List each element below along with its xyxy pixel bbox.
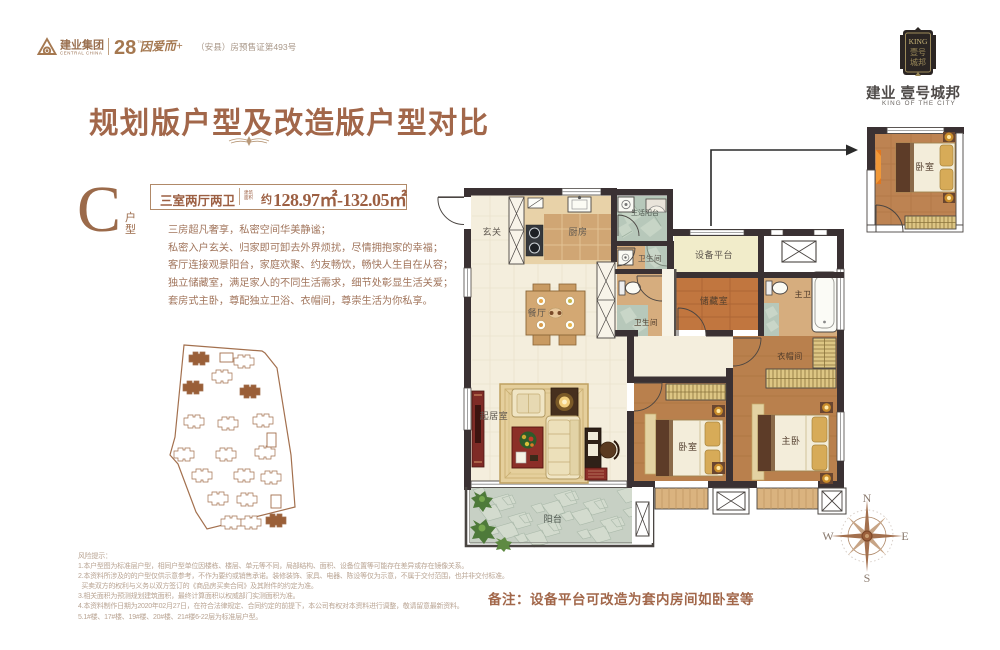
svg-text:城邦: 城邦 [910, 57, 926, 67]
svg-text:KING: KING [909, 37, 928, 46]
svg-text:建业集团: 建业集团 [60, 38, 104, 52]
svg-text:储藏室: 储藏室 [700, 295, 729, 306]
svg-text:N: N [863, 491, 872, 505]
svg-text:生活阳台: 生活阳台 [631, 208, 659, 217]
svg-text:CENTRAL CHINA: CENTRAL CHINA [60, 51, 102, 56]
svg-text:28: 28 [114, 37, 136, 59]
svg-text:壹号: 壹号 [910, 47, 926, 57]
svg-text:因爱而+: 因爱而+ [140, 39, 183, 54]
svg-text:主卧: 主卧 [781, 435, 800, 446]
svg-text:厨房: 厨房 [568, 226, 587, 237]
svg-text:玄关: 玄关 [482, 226, 501, 237]
svg-text:E: E [901, 529, 908, 543]
svg-text:起居室: 起居室 [480, 410, 509, 421]
svg-text:卫生间: 卫生间 [634, 317, 658, 327]
svg-text:餐厅: 餐厅 [527, 307, 546, 318]
svg-text:卧室: 卧室 [678, 441, 697, 452]
svg-text:S: S [864, 571, 871, 585]
svg-text:阳台: 阳台 [543, 513, 562, 524]
svg-text:主卫: 主卫 [795, 289, 812, 299]
svg-text:衣帽间: 衣帽间 [777, 351, 803, 361]
svg-text:卧室: 卧室 [915, 161, 934, 172]
svg-text:卫生间: 卫生间 [638, 253, 662, 263]
svg-text:设备平台: 设备平台 [695, 249, 733, 260]
